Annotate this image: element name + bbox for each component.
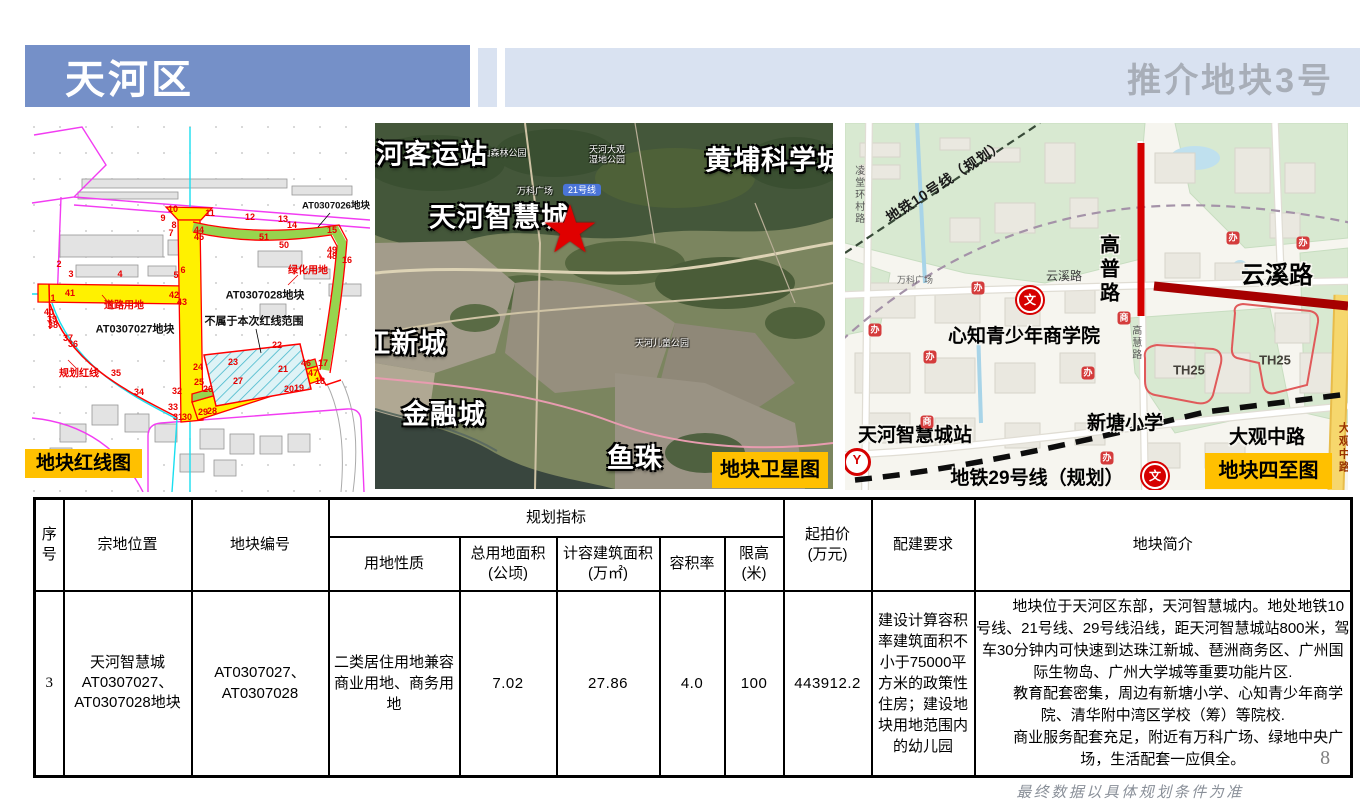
satellite-area-label: 珠江新城 <box>375 328 447 359</box>
bounds-map-label: 地铁10号线（规划） <box>883 137 1007 225</box>
bounds-map-label: Y <box>845 448 871 476</box>
satellite-map: 火炉山森林公园天河大观 湿地公园天河儿童公园21号线万科广场 天河客运站黄埔科学… <box>375 123 833 489</box>
bounds-map-label: 万科广场 <box>897 275 933 285</box>
bounds-map-label: 高慧路 <box>1129 325 1141 361</box>
redline-map: 1098711121314154445515049481626534411424… <box>30 123 370 492</box>
satellite-area-label: 鱼珠 <box>607 443 663 474</box>
bounds-map-label: 办 <box>1082 367 1095 380</box>
satellite-area-label: 天河客运站 <box>375 139 488 170</box>
cell-gfa: 27.86 <box>557 591 660 777</box>
satellite-map-caption: 地块卫星图 <box>712 452 828 488</box>
bounds-map: 地铁10号线（规划）凌堂环村路高普路云溪路云溪路高慧路心知青少年商学院TH25T… <box>845 123 1348 490</box>
cell-land-use: 二类居住用地兼容商业用地、商务用地 <box>329 591 460 777</box>
satellite-area-label: 金融城 <box>402 399 486 430</box>
cell-location: 天河智慧城 AT0307027、 AT0307028地块 <box>64 591 192 777</box>
bounds-map-caption: 地块四至图 <box>1205 453 1332 489</box>
redline-map-caption: 地块红线图 <box>25 449 142 478</box>
cell-total-area: 7.02 <box>460 591 557 777</box>
satellite-area-label: 黄埔科学城 <box>705 145 833 176</box>
col-header-location: 宗地位置 <box>64 499 192 591</box>
redline-map-label: AT0307028地块 <box>226 290 305 303</box>
parcel-intro-text: 地块位于天河区东部，天河智慧城内。地处地铁10号线、21号线、29号线沿线，距天… <box>976 596 1351 770</box>
redline-map-label: 绿化用地 <box>288 265 328 277</box>
col-header-land-use: 用地性质 <box>329 537 460 591</box>
header-divider-strip <box>478 48 497 107</box>
col-header-height-limit: 限高 (米) <box>725 537 784 591</box>
cell-build-requirements: 建设计算容积率建筑面积不小于75000平方米的政策性住房；建设地块用地范围内的幼… <box>872 591 975 777</box>
cell-seq: 3 <box>35 591 64 777</box>
bounds-map-label: 办 <box>924 351 937 364</box>
redline-map-label: 不属于本次红线范围 <box>205 316 304 329</box>
bounds-map-label: TH25 <box>1259 354 1291 369</box>
bounds-map-label: 商 <box>1118 312 1131 325</box>
col-header-build-requirements: 配建要求 <box>872 499 975 591</box>
bounds-map-label: 文 <box>1017 287 1043 313</box>
page-number: 8 <box>1320 744 1330 773</box>
cell-parcel-no: AT0307027、 AT0307028 <box>192 591 329 777</box>
redline-map-label: 规划红线 <box>59 368 99 380</box>
col-header-planning-indicators: 规划指标 <box>329 499 784 537</box>
bounds-map-label: 大观中路 <box>1337 422 1348 474</box>
bounds-map-label: 商 <box>921 416 934 429</box>
cell-far: 4.0 <box>660 591 725 777</box>
bounds-map-label: 高普路 <box>1096 234 1119 306</box>
col-header-starting-price: 起拍价 (万元) <box>784 499 872 591</box>
bounds-map-label: 云溪路 <box>1046 270 1082 284</box>
bounds-map-label: 地铁29号线（规划） <box>950 468 1123 490</box>
table-row: 3 天河智慧城 AT0307027、 AT0307028地块 AT0307027… <box>35 591 1352 777</box>
bounds-map-label: 办 <box>972 282 985 295</box>
bounds-map-label: 办 <box>1297 237 1310 250</box>
disclaimer-note: 最终数据以具体规划条件为准 <box>900 781 1360 802</box>
cell-height-limit: 100 <box>725 591 784 777</box>
col-header-parcel-intro: 地块简介 <box>975 499 1352 591</box>
col-header-gfa: 计容建筑面积 (万㎡) <box>557 537 660 591</box>
bounds-map-label: 文 <box>1142 463 1168 489</box>
bounds-map-label: 大观中路 <box>1229 427 1305 449</box>
col-header-seq: 序号 <box>35 499 64 591</box>
bounds-map-label: 凌堂环村路 <box>852 165 864 225</box>
parcel-info-table: 序号 宗地位置 地块编号 规划指标 起拍价 (万元) 配建要求 地块简介 用地性… <box>33 497 1353 778</box>
intro-paragraph: 地块位于天河区东部，天河智慧城内。地处地铁10号线、21号线、29号线沿线，距天… <box>976 596 1351 683</box>
bounds-map-label: 办 <box>1101 452 1114 465</box>
redline-map-label: 道路用地 <box>104 300 144 312</box>
satellite-area-label: ★ <box>540 192 599 268</box>
bounds-map-label: 新塘小学 <box>1087 413 1163 435</box>
slide: 天河区 推介地块3号 <box>0 0 1360 803</box>
redline-map-label: AT0307026地块 <box>302 202 370 213</box>
district-header-band: 天河区 <box>25 45 470 107</box>
col-header-far: 容积率 <box>660 537 725 591</box>
plot-number-title: 推介地块3号 <box>1127 53 1334 102</box>
col-header-total-area: 总用地面积 (公顷) <box>460 537 557 591</box>
bounds-map-label: 天河智慧城站 <box>858 425 972 447</box>
intro-paragraph: 商业服务配套充足，附近有万科广场、绿地中央广场，生活配套一应俱全。 <box>976 727 1351 771</box>
redline-map-label: AT0307027地块 <box>96 324 175 337</box>
cell-parcel-intro: 地块位于天河区东部，天河智慧城内。地处地铁10号线、21号线、29号线沿线，距天… <box>975 591 1352 777</box>
cell-starting-price: 443912.2 <box>784 591 872 777</box>
bounds-map-label: TH25 <box>1173 364 1205 379</box>
district-title: 天河区 <box>65 47 194 105</box>
bounds-map-label: 办 <box>1227 232 1240 245</box>
intro-paragraph: 教育配套密集，周边有新塘小学、心知青少年商学院、清华附中湾区学校（筹）等院校. <box>976 683 1351 727</box>
plot-header-band: 推介地块3号 <box>505 48 1360 107</box>
bounds-map-label: 云溪路 <box>1241 262 1313 290</box>
bounds-map-label: 办 <box>869 324 882 337</box>
col-header-parcel-no: 地块编号 <box>192 499 329 591</box>
bounds-map-label: 心知青少年商学院 <box>948 326 1100 348</box>
